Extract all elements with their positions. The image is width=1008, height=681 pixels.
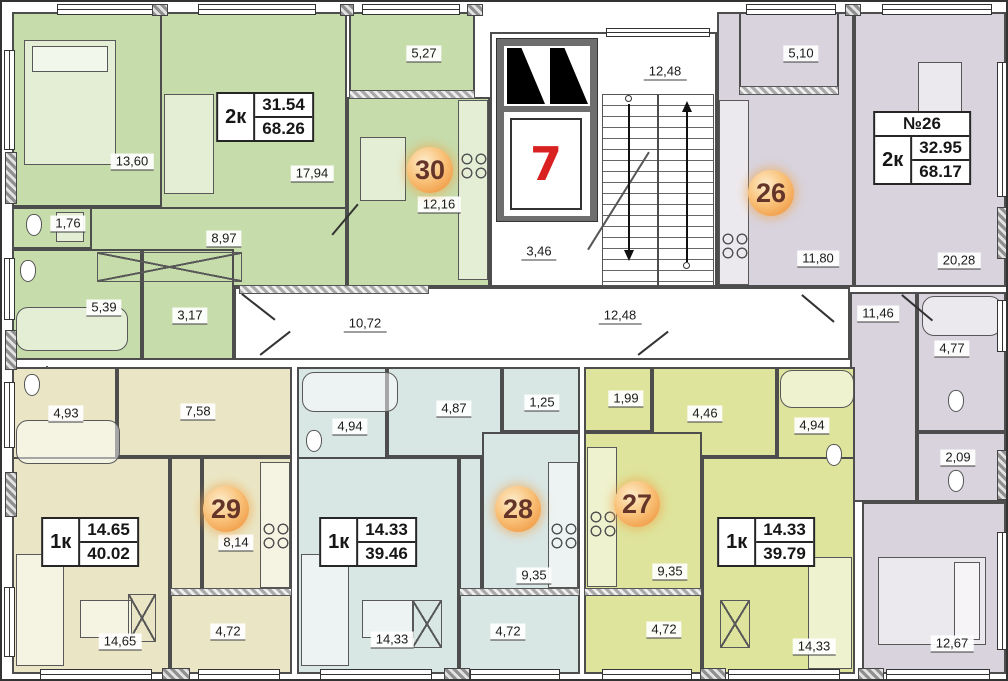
furniture-bathtub <box>922 296 1002 336</box>
furniture-table <box>80 600 132 638</box>
toilet-icon <box>26 214 42 236</box>
window <box>198 669 280 680</box>
apartment-badge-29[interactable]: 29 <box>203 486 249 532</box>
apartment-badge-26[interactable]: 26 <box>748 170 794 216</box>
dim-a29-bath: 4,93 <box>48 406 83 423</box>
dim-a27-living: 14,33 <box>793 639 836 656</box>
furniture-sofa <box>301 554 349 666</box>
room-corridor <box>234 287 850 360</box>
room-a26-wc <box>917 432 1006 502</box>
dim-a28-living: 14,33 <box>371 632 414 649</box>
apartment-type-label: 2к <box>875 137 912 183</box>
window <box>997 300 1008 352</box>
stair-arrow-down-head <box>624 250 634 261</box>
dim-a27-hall: 4,46 <box>687 406 722 423</box>
window <box>997 62 1008 197</box>
stair-arrow-up <box>686 112 688 262</box>
window <box>606 28 710 37</box>
balcony-sill <box>170 588 292 596</box>
window <box>4 50 15 150</box>
stove-icon <box>550 522 578 550</box>
dim-a26-living: 20,28 <box>938 253 981 270</box>
dim-a30-bath: 5,39 <box>86 300 121 317</box>
dim-a28-closet: 1,25 <box>524 395 559 412</box>
stair-divider <box>657 94 659 286</box>
window <box>882 4 992 15</box>
dim-a28-balcony: 4,72 <box>490 624 525 641</box>
area-room-value: 32.95 <box>912 137 969 161</box>
area-total-value: 68.26 <box>255 118 312 140</box>
dim-corridor-right: 12,48 <box>599 308 642 325</box>
dim-a28-bath: 4,94 <box>332 419 367 436</box>
area-table-a29: 1к 14.65 40.02 <box>41 517 139 567</box>
dim-a29-kitchen: 8,14 <box>218 535 253 552</box>
elevator-cab: 7 <box>510 118 582 210</box>
window <box>4 382 15 448</box>
dim-a26-kitchen: 11,80 <box>797 251 839 268</box>
area-table-a30: 2к 31.54 68.26 <box>216 92 314 142</box>
window <box>470 669 560 680</box>
wall-pier <box>858 668 884 680</box>
dim-a30-entry: 3,17 <box>172 308 207 325</box>
dim-a27-balcony: 4,72 <box>646 622 681 639</box>
toilet-icon <box>24 374 40 396</box>
furniture-wardrobe <box>46 366 48 368</box>
area-total-value: 40.02 <box>80 543 137 565</box>
balcony-sill <box>349 90 475 99</box>
window <box>886 669 990 680</box>
furniture-bathtub <box>16 420 120 464</box>
stove-icon <box>262 522 290 550</box>
room-a28-storage <box>459 457 482 592</box>
window <box>57 4 162 15</box>
dim-a30-hall: 8,97 <box>206 231 241 248</box>
dim-a30-kitchen: 12,16 <box>418 197 461 214</box>
apartment-type-label: 2к <box>218 94 255 140</box>
toilet-icon <box>826 444 842 466</box>
toilet-icon <box>306 430 322 452</box>
wall-pier <box>997 450 1007 500</box>
area-table-a27: 1к 14.33 39.79 <box>717 517 815 567</box>
stair-landing-dot <box>683 262 690 269</box>
wall-pier <box>700 668 726 680</box>
window <box>4 258 15 320</box>
furniture-counter <box>458 100 488 280</box>
room-a26-hall <box>850 292 917 502</box>
dim-a26-bedroom: 12,67 <box>931 636 974 653</box>
wall-pier <box>5 152 17 204</box>
dim-stairs: 12,48 <box>644 64 687 81</box>
furniture-table <box>360 137 406 201</box>
dim-a29-living: 14,65 <box>99 634 142 651</box>
dim-a26-balcony: 5,10 <box>783 46 818 63</box>
area-total-value: 68.17 <box>912 161 969 183</box>
dim-a26-bath: 4,77 <box>934 341 969 358</box>
stair-arrow-up-head <box>682 101 692 112</box>
room-a27-balcony <box>584 592 702 674</box>
apartment-badge-27[interactable]: 27 <box>614 481 660 527</box>
dim-a30-bedroom: 13,60 <box>111 154 154 171</box>
dim-a30-balcony: 5,27 <box>406 46 441 63</box>
window <box>40 669 152 680</box>
balcony-sill <box>584 588 702 596</box>
furniture-wardrobe <box>720 600 750 648</box>
toilet-icon <box>948 390 964 412</box>
floor-plan: 7 <box>0 0 1008 681</box>
balcony-sill <box>459 588 580 596</box>
stove-icon <box>460 152 488 180</box>
wall-pier <box>444 668 470 680</box>
room-a29-storage <box>170 457 202 592</box>
window <box>362 4 460 15</box>
wall-pier <box>997 207 1007 259</box>
furniture-bathtub <box>780 370 854 408</box>
furniture-sofa <box>16 554 64 666</box>
apartment-type-label: 1к <box>719 519 756 565</box>
area-room-value: 31.54 <box>255 94 312 118</box>
wall-pier <box>5 330 17 370</box>
toilet-icon <box>948 470 964 492</box>
wall-pier <box>845 4 861 16</box>
dim-a27-closet: 1,99 <box>608 391 643 408</box>
window <box>728 669 840 680</box>
window <box>746 4 836 15</box>
apartment-type-label: 1к <box>43 519 80 565</box>
wall-pier <box>340 4 354 16</box>
window <box>602 669 692 680</box>
furniture-pillow <box>32 46 108 72</box>
apartment-number-label: №26 <box>875 113 969 137</box>
area-total-value: 39.46 <box>358 543 415 565</box>
corridor-wall-hatch <box>239 285 429 294</box>
furniture-wardrobe <box>412 600 442 648</box>
dim-a30-wc: 1,76 <box>50 216 85 233</box>
wall-pier <box>152 4 168 16</box>
dim-a29-hall: 7,58 <box>180 404 215 421</box>
apartment-type-label: 1к <box>321 519 358 565</box>
dim-a26-hall: 11,46 <box>857 306 899 323</box>
area-table-a26: №26 2к 32.95 68.17 <box>873 111 971 185</box>
toilet-icon <box>20 260 36 282</box>
dim-a28-hall: 4,87 <box>436 401 471 418</box>
dim-a27-bath: 4,94 <box>794 418 829 435</box>
furniture-sofa <box>164 94 214 194</box>
window <box>198 4 316 15</box>
dim-a28-kitchen: 9,35 <box>516 568 551 585</box>
area-total-value: 39.79 <box>756 543 813 565</box>
window <box>997 532 1008 650</box>
elevator-number: 7 <box>530 141 562 187</box>
dim-a26-wc: 2,09 <box>940 450 975 467</box>
dim-a30-living: 17,94 <box>291 166 334 183</box>
window <box>4 587 15 657</box>
window <box>320 669 432 680</box>
stove-icon <box>721 232 749 260</box>
wall-pier <box>467 4 483 16</box>
furniture-pillow <box>954 562 980 640</box>
apartment-badge-30[interactable]: 30 <box>407 147 453 193</box>
wall-pier <box>5 472 17 517</box>
area-table-a28: 1к 14.33 39.46 <box>319 517 417 567</box>
furniture-bathtub <box>302 372 398 412</box>
area-room-value: 14.33 <box>358 519 415 543</box>
dim-a29-balcony: 4,72 <box>210 624 245 641</box>
stair-arrow-down <box>628 104 630 250</box>
dim-lobby: 3,46 <box>521 244 556 261</box>
apartment-badge-28[interactable]: 28 <box>495 486 541 532</box>
stove-icon <box>589 510 617 538</box>
wall-pier <box>162 668 190 680</box>
dim-a27-kitchen: 9,35 <box>652 564 687 581</box>
dim-corridor-left: 10,72 <box>344 316 387 333</box>
stair-landing-dot <box>625 95 632 102</box>
balcony-sill <box>739 86 839 95</box>
furniture-wardrobe <box>97 252 242 282</box>
area-room-value: 14.65 <box>80 519 137 543</box>
area-room-value: 14.33 <box>756 519 813 543</box>
